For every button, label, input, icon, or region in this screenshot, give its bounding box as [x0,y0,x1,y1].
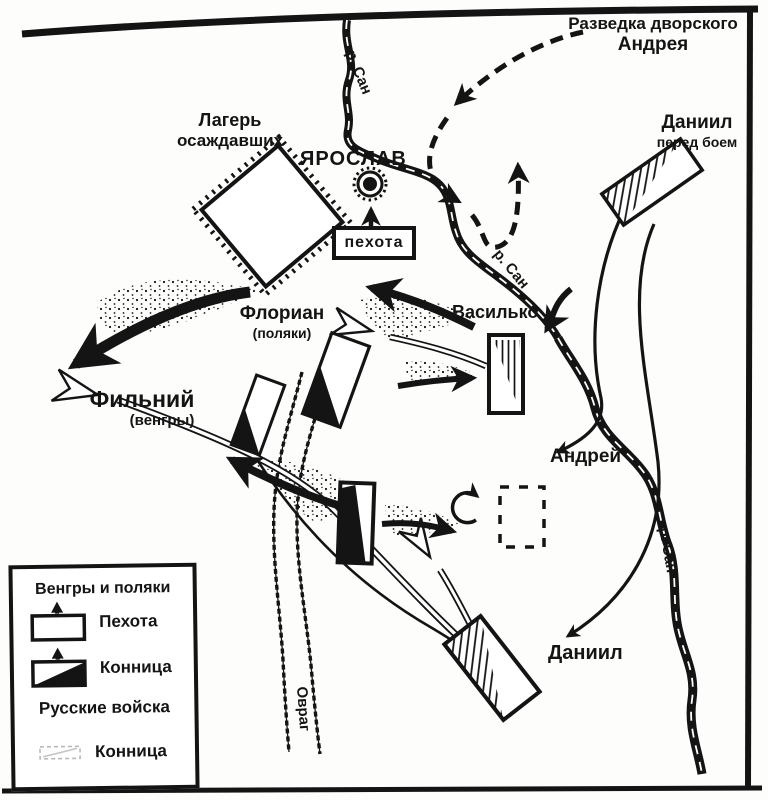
camp-label: Лагерь осаждавших [148,110,312,152]
legend-cavalry-row: Конница [14,645,195,692]
cavalry-rect-symbol [28,646,91,691]
vasilko-label: Василько [452,302,538,323]
infantry-box-label: пехота [332,226,416,260]
unit-center-cavalry [338,482,375,563]
recon-label: Разведка дворского Андрея [545,14,761,56]
recon-label-line2: Андрея [618,34,689,55]
dashed-position-square [500,487,544,547]
daniil-before-label: Даниил перед боем [633,112,761,152]
legend-group1-title: Венгры и поляки [17,579,189,599]
filniy-label: Фильний (венгры) [58,386,226,431]
unit-florian-2 [231,375,285,455]
unit-daniil [444,616,539,720]
ravine-label: Овраг [293,686,313,732]
florian-label: Флориан (поляки) [216,303,348,343]
camp-label-line2: осаждавших [177,131,283,150]
unit-vasilko [489,335,523,413]
infantry-rect-symbol [27,600,90,645]
legend-group2-title: Русские войска [18,697,190,719]
florian-line1: Флориан [240,303,325,324]
camp-label-line1: Лагерь [199,110,262,130]
daniil-label: Даниил [548,642,623,665]
legend-russian-cavalry-row: Конница [15,741,195,764]
legend-cavalry-label: Конница [100,657,172,678]
legend-box: Венгры и поляки Пехота Конница Русские в… [8,563,199,792]
legend-infantry-label: Пехота [99,611,158,632]
town-label: ЯРОСЛАВ [300,148,407,171]
unit-florian-1 [302,333,369,427]
florian-line2: (поляки) [253,325,312,341]
russian-cavalry-faint-symbol [37,743,85,762]
daniil-before-line1: Даниил [661,112,732,133]
filniy-line1: Фильний [90,386,195,412]
yaroslav-town-icon [354,168,386,200]
circular-maneuver-arrow [453,493,477,523]
recon-label-line1: Разведка дворского [568,14,738,33]
andrey-label: Андрей [550,446,621,468]
filniy-line2: (венгры) [130,412,195,429]
legend-russian-cavalry-label: Конница [95,741,167,762]
legend-infantry-row: Пехота [13,599,194,646]
battle-map: Разведка дворского Андрея Лагерь осаждав… [0,0,768,800]
daniil-before-line2: перед боем [657,134,738,150]
